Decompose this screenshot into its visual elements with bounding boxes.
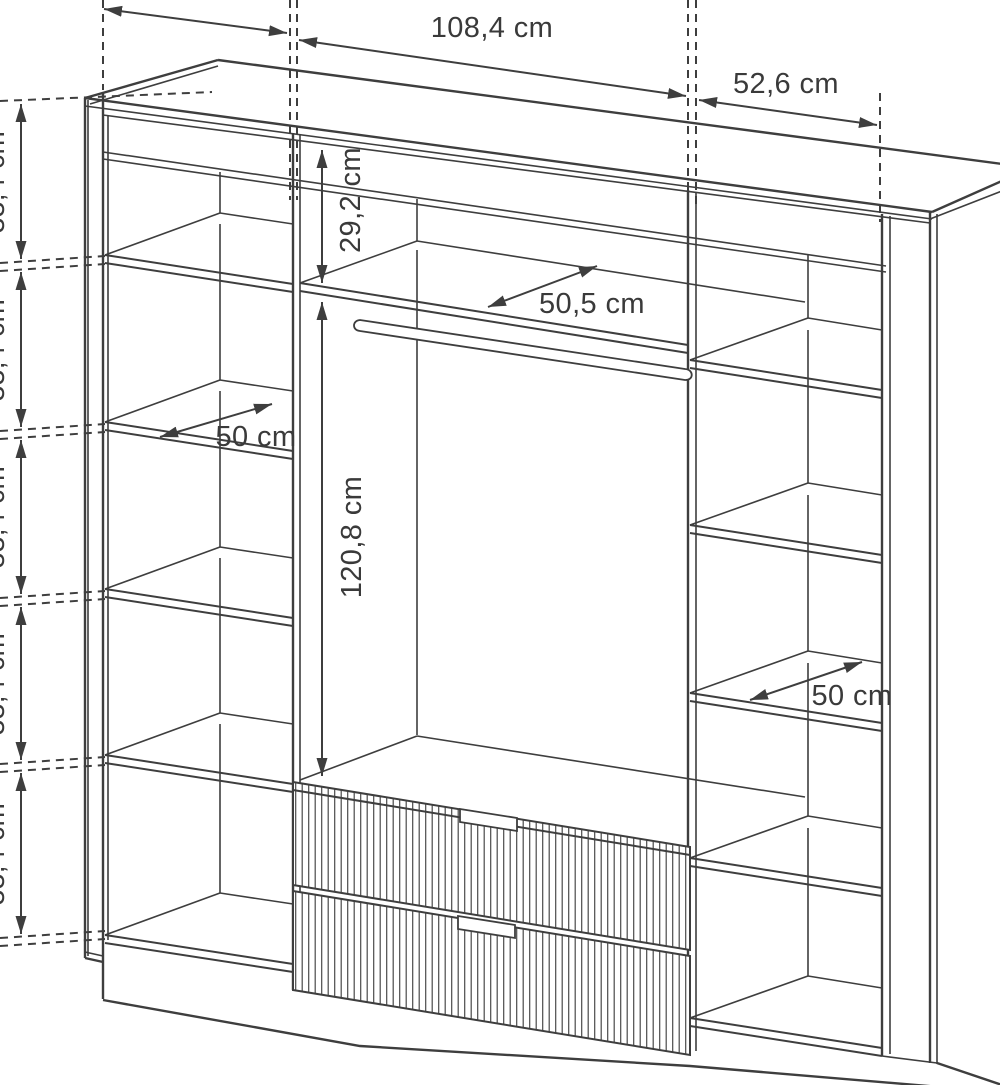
center-section xyxy=(300,241,805,797)
shelf xyxy=(690,483,882,563)
label-left-segment-5: 33,4 cm xyxy=(0,803,10,905)
dim-line-right-width xyxy=(699,100,877,125)
shelf xyxy=(105,213,293,292)
bottom-panel xyxy=(105,893,293,972)
dashed-guides xyxy=(0,0,880,946)
wardrobe-outline xyxy=(85,60,1000,1085)
center-floor xyxy=(300,736,805,797)
left-segment-labels-cropped: 33,4 cm 33,4 cm 33,4 cm 33,4 cm 33,4 cm xyxy=(0,131,10,905)
label-left-segment-4: 33,4 cm xyxy=(0,633,10,735)
label-right-width: 52,6 cm xyxy=(733,68,839,100)
drawers xyxy=(293,782,690,1055)
label-left-segment-1: 33,4 cm xyxy=(0,131,10,233)
shelf xyxy=(690,318,882,398)
label-left-segment-3: 33,4 cm xyxy=(0,466,10,568)
label-center-shelf-depth: 50,5 cm xyxy=(539,288,645,320)
label-center-width: 108,4 cm xyxy=(431,12,554,44)
hanging-rod xyxy=(354,320,692,380)
left-side-panel xyxy=(85,93,108,999)
shelf xyxy=(105,713,293,792)
diagram-canvas: 108,4 cm 52,6 cm 29,2 cm 50,5 cm 50 cm 1… xyxy=(0,0,1000,1085)
dim-line-left-door-width xyxy=(104,9,287,33)
shelf xyxy=(105,547,293,626)
label-right-shelf-depth: 50 cm xyxy=(812,680,893,712)
label-top-shelf-clearance: 29,2 cm xyxy=(335,147,367,253)
label-left-shelf-depth: 50 cm xyxy=(216,421,297,453)
label-hanging-height: 120,8 cm xyxy=(336,476,368,599)
dim-line-center-width xyxy=(299,40,686,96)
wardrobe-dimension-diagram: 108,4 cm 52,6 cm 29,2 cm 50,5 cm 50 cm 1… xyxy=(0,0,1000,1085)
left-column-shelves xyxy=(105,213,293,972)
label-left-segment-2: 33,4 cm xyxy=(0,299,10,401)
shelf xyxy=(690,816,882,896)
bottom-panel xyxy=(690,976,882,1056)
top-panel xyxy=(85,60,1000,272)
